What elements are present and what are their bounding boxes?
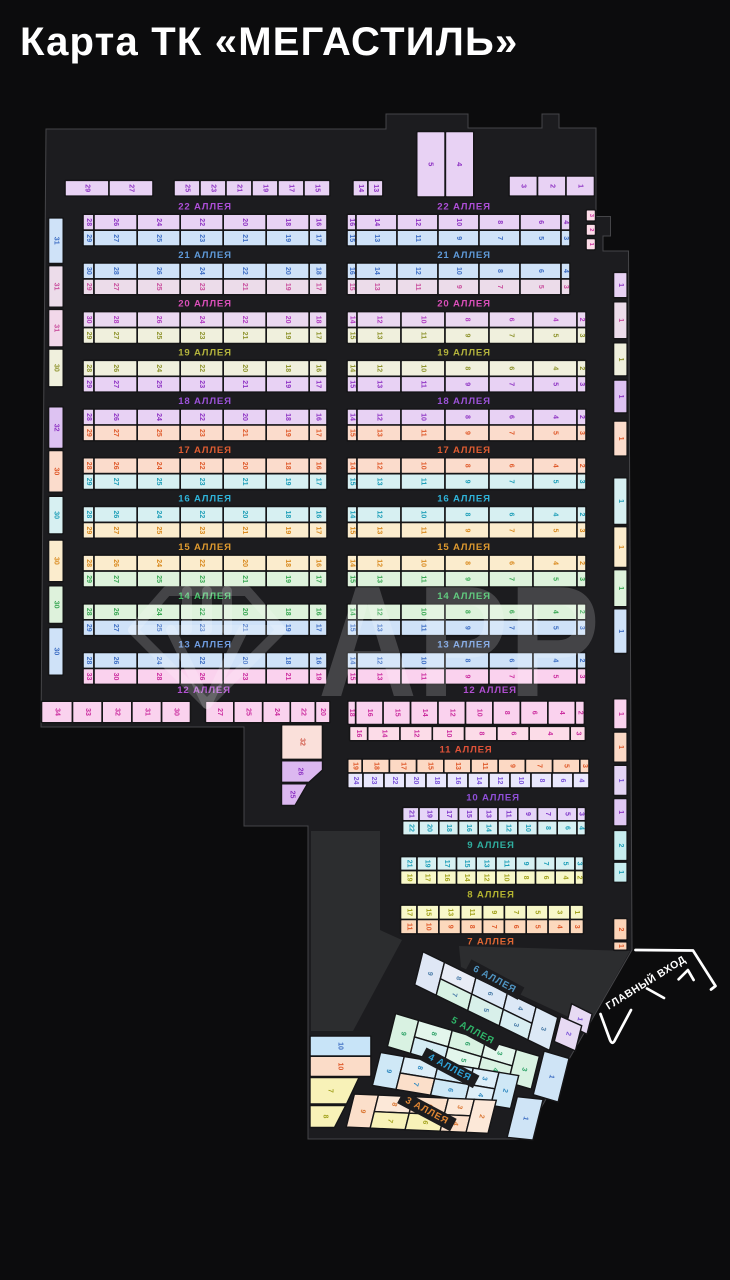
svg-text:9: 9 bbox=[446, 925, 453, 929]
svg-text:14: 14 bbox=[485, 824, 492, 832]
svg-text:27: 27 bbox=[112, 478, 119, 486]
svg-text:19 АЛЛЕЯ: 19 АЛЛЕЯ bbox=[437, 347, 491, 358]
svg-text:21: 21 bbox=[241, 575, 248, 583]
svg-text:Карта ТК «МЕГАСТИЛЬ»: Карта ТК «МЕГАСТИЛЬ» bbox=[20, 20, 518, 64]
svg-text:12: 12 bbox=[496, 777, 503, 785]
svg-text:9: 9 bbox=[464, 480, 471, 484]
svg-text:30: 30 bbox=[112, 673, 119, 681]
svg-text:7: 7 bbox=[508, 528, 515, 532]
svg-text:20: 20 bbox=[241, 511, 248, 519]
svg-text:23: 23 bbox=[198, 527, 205, 535]
svg-text:18: 18 bbox=[284, 364, 291, 372]
svg-text:1: 1 bbox=[617, 395, 624, 399]
svg-text:27: 27 bbox=[112, 332, 119, 340]
svg-text:4: 4 bbox=[556, 925, 563, 929]
svg-text:4: 4 bbox=[562, 220, 569, 224]
svg-text:31: 31 bbox=[52, 283, 59, 291]
svg-text:30: 30 bbox=[85, 316, 92, 324]
svg-text:18: 18 bbox=[284, 657, 291, 665]
svg-text:1: 1 bbox=[617, 318, 624, 322]
svg-text:5: 5 bbox=[426, 162, 435, 166]
svg-text:24: 24 bbox=[273, 708, 280, 716]
svg-text:16 АЛЛЕЯ: 16 АЛЛЕЯ bbox=[178, 494, 232, 505]
svg-text:27: 27 bbox=[112, 283, 119, 291]
svg-text:28: 28 bbox=[112, 267, 119, 275]
svg-text:15: 15 bbox=[349, 429, 356, 437]
svg-text:14: 14 bbox=[349, 364, 356, 372]
svg-text:1: 1 bbox=[617, 437, 624, 441]
svg-text:8: 8 bbox=[522, 876, 529, 880]
svg-text:22 АЛЛЕЯ: 22 АЛЛЕЯ bbox=[178, 201, 232, 212]
svg-text:11: 11 bbox=[420, 380, 427, 388]
svg-text:25: 25 bbox=[155, 332, 162, 340]
svg-text:29: 29 bbox=[85, 527, 92, 535]
svg-text:24: 24 bbox=[155, 462, 162, 470]
svg-text:9 АЛЛЕЯ: 9 АЛЛЕЯ bbox=[467, 840, 514, 851]
svg-text:5: 5 bbox=[564, 812, 571, 816]
svg-text:1: 1 bbox=[617, 712, 624, 716]
svg-text:16: 16 bbox=[465, 824, 472, 832]
svg-text:12: 12 bbox=[376, 462, 383, 470]
svg-text:23: 23 bbox=[198, 380, 205, 388]
svg-text:8: 8 bbox=[322, 1115, 329, 1119]
svg-text:14: 14 bbox=[380, 730, 387, 738]
svg-text:4: 4 bbox=[552, 415, 559, 419]
svg-text:13: 13 bbox=[454, 762, 461, 770]
svg-text:7: 7 bbox=[496, 285, 503, 289]
svg-text:5: 5 bbox=[552, 528, 559, 532]
svg-text:11: 11 bbox=[414, 283, 421, 291]
svg-text:20: 20 bbox=[241, 559, 248, 567]
svg-text:12: 12 bbox=[414, 218, 421, 226]
svg-text:13: 13 bbox=[373, 283, 380, 291]
svg-text:31: 31 bbox=[143, 708, 150, 716]
svg-text:1: 1 bbox=[617, 944, 624, 948]
svg-text:10: 10 bbox=[524, 824, 531, 832]
svg-text:5: 5 bbox=[552, 431, 559, 435]
svg-text:32: 32 bbox=[52, 424, 59, 432]
svg-text:27: 27 bbox=[112, 380, 119, 388]
svg-text:33: 33 bbox=[85, 673, 92, 681]
svg-text:24: 24 bbox=[352, 777, 359, 785]
svg-text:19: 19 bbox=[284, 332, 291, 340]
svg-text:14: 14 bbox=[475, 777, 482, 785]
svg-text:29: 29 bbox=[85, 429, 92, 437]
svg-text:21: 21 bbox=[407, 810, 414, 818]
svg-text:7: 7 bbox=[542, 862, 549, 866]
svg-text:12: 12 bbox=[376, 364, 383, 372]
svg-text:14: 14 bbox=[373, 267, 380, 275]
svg-text:21: 21 bbox=[241, 332, 248, 340]
svg-text:11: 11 bbox=[502, 860, 509, 868]
svg-text:2: 2 bbox=[578, 512, 585, 516]
svg-text:10: 10 bbox=[455, 267, 462, 275]
svg-text:7: 7 bbox=[536, 764, 543, 768]
svg-text:12: 12 bbox=[414, 267, 421, 275]
svg-text:23: 23 bbox=[198, 234, 205, 242]
svg-text:21: 21 bbox=[241, 527, 248, 535]
svg-text:17: 17 bbox=[400, 762, 407, 770]
svg-text:22: 22 bbox=[241, 316, 248, 324]
svg-text:2: 2 bbox=[576, 876, 583, 880]
svg-text:32: 32 bbox=[299, 738, 306, 746]
svg-text:6: 6 bbox=[508, 318, 515, 322]
svg-text:30: 30 bbox=[173, 708, 180, 716]
svg-text:10: 10 bbox=[455, 218, 462, 226]
svg-text:3: 3 bbox=[578, 334, 585, 338]
svg-text:23: 23 bbox=[198, 575, 205, 583]
svg-text:17: 17 bbox=[315, 332, 322, 340]
svg-text:11: 11 bbox=[405, 923, 412, 931]
svg-text:20: 20 bbox=[241, 608, 248, 616]
svg-text:10 АЛЛЕЯ: 10 АЛЛЕЯ bbox=[466, 793, 520, 804]
svg-text:17: 17 bbox=[315, 478, 322, 486]
svg-text:27: 27 bbox=[216, 708, 223, 716]
svg-text:6: 6 bbox=[564, 826, 571, 830]
svg-text:20: 20 bbox=[241, 462, 248, 470]
svg-text:14: 14 bbox=[349, 462, 356, 470]
svg-text:10: 10 bbox=[502, 874, 509, 882]
svg-text:8: 8 bbox=[464, 464, 471, 468]
svg-text:25: 25 bbox=[155, 380, 162, 388]
svg-text:15: 15 bbox=[348, 234, 355, 242]
svg-text:28: 28 bbox=[85, 511, 92, 519]
svg-text:20 АЛЛЕЯ: 20 АЛЛЕЯ bbox=[437, 299, 491, 310]
svg-text:12: 12 bbox=[376, 316, 383, 324]
svg-text:16: 16 bbox=[355, 730, 362, 738]
svg-text:22: 22 bbox=[198, 511, 205, 519]
svg-text:22: 22 bbox=[391, 777, 398, 785]
svg-text:2: 2 bbox=[578, 464, 585, 468]
svg-text:26: 26 bbox=[112, 559, 119, 567]
svg-text:7: 7 bbox=[512, 910, 519, 914]
svg-text:4: 4 bbox=[562, 876, 569, 880]
svg-text:3: 3 bbox=[520, 184, 527, 188]
svg-text:31: 31 bbox=[52, 324, 59, 332]
svg-text:11: 11 bbox=[481, 762, 488, 770]
svg-text:19: 19 bbox=[284, 283, 291, 291]
svg-text:8: 8 bbox=[464, 512, 471, 516]
svg-text:5: 5 bbox=[552, 334, 559, 338]
svg-text:29: 29 bbox=[84, 184, 91, 192]
svg-text:27: 27 bbox=[128, 184, 135, 192]
svg-text:3: 3 bbox=[578, 480, 585, 484]
svg-text:10: 10 bbox=[420, 511, 427, 519]
svg-text:28: 28 bbox=[85, 608, 92, 616]
svg-text:18: 18 bbox=[372, 762, 379, 770]
svg-text:1: 1 bbox=[617, 870, 624, 874]
svg-text:24: 24 bbox=[155, 413, 162, 421]
svg-text:3: 3 bbox=[562, 285, 569, 289]
svg-text:16: 16 bbox=[315, 364, 322, 372]
svg-text:30: 30 bbox=[52, 364, 59, 372]
svg-text:29: 29 bbox=[85, 478, 92, 486]
svg-text:4: 4 bbox=[552, 366, 559, 370]
svg-text:4: 4 bbox=[552, 318, 559, 322]
svg-text:16: 16 bbox=[315, 511, 322, 519]
svg-text:16: 16 bbox=[348, 218, 355, 226]
svg-text:1: 1 bbox=[617, 629, 624, 633]
svg-text:12: 12 bbox=[413, 730, 420, 738]
svg-text:19 АЛЛЕЯ: 19 АЛЛЕЯ bbox=[178, 347, 232, 358]
svg-text:11: 11 bbox=[504, 810, 511, 818]
svg-text:1: 1 bbox=[588, 243, 594, 246]
svg-text:22: 22 bbox=[198, 413, 205, 421]
svg-text:12: 12 bbox=[504, 824, 511, 832]
svg-text:8: 8 bbox=[496, 220, 503, 224]
svg-text:18 АЛЛЕЯ: 18 АЛЛЕЯ bbox=[178, 396, 232, 407]
svg-text:19: 19 bbox=[284, 478, 291, 486]
svg-text:9: 9 bbox=[524, 812, 531, 816]
svg-text:7 АЛЛЕЯ: 7 АЛЛЕЯ bbox=[467, 937, 514, 948]
svg-text:9: 9 bbox=[455, 285, 462, 289]
svg-text:6: 6 bbox=[542, 876, 549, 880]
svg-text:14: 14 bbox=[349, 413, 356, 421]
svg-text:18: 18 bbox=[315, 316, 322, 324]
svg-text:4: 4 bbox=[546, 732, 553, 736]
svg-text:5: 5 bbox=[552, 382, 559, 386]
svg-text:8 АЛЛЕЯ: 8 АЛЛЕЯ bbox=[467, 889, 514, 900]
svg-text:18: 18 bbox=[445, 824, 452, 832]
svg-text:22: 22 bbox=[198, 657, 205, 665]
svg-text:17: 17 bbox=[405, 908, 412, 916]
svg-text:11: 11 bbox=[420, 429, 427, 437]
svg-text:1: 1 bbox=[617, 499, 624, 503]
svg-text:2: 2 bbox=[588, 228, 594, 231]
svg-text:28: 28 bbox=[155, 673, 162, 681]
svg-text:3: 3 bbox=[576, 862, 583, 866]
svg-text:1: 1 bbox=[617, 545, 624, 549]
svg-text:29: 29 bbox=[85, 332, 92, 340]
svg-text:15: 15 bbox=[348, 283, 355, 291]
svg-text:19: 19 bbox=[423, 860, 430, 868]
svg-text:1: 1 bbox=[577, 184, 584, 188]
svg-text:21: 21 bbox=[284, 673, 291, 681]
svg-text:28: 28 bbox=[85, 657, 92, 665]
svg-text:6: 6 bbox=[512, 925, 519, 929]
svg-text:21: 21 bbox=[241, 234, 248, 242]
svg-text:15: 15 bbox=[349, 527, 356, 535]
svg-text:10: 10 bbox=[337, 1042, 344, 1050]
svg-text:2: 2 bbox=[617, 844, 624, 848]
svg-text:25: 25 bbox=[184, 184, 191, 192]
svg-text:25: 25 bbox=[155, 283, 162, 291]
svg-text:25: 25 bbox=[289, 791, 296, 799]
svg-text:21: 21 bbox=[241, 429, 248, 437]
svg-text:10: 10 bbox=[517, 777, 524, 785]
svg-text:22: 22 bbox=[198, 218, 205, 226]
svg-text:15: 15 bbox=[349, 332, 356, 340]
svg-text:3: 3 bbox=[556, 910, 563, 914]
svg-text:1: 1 bbox=[617, 357, 624, 361]
svg-text:9: 9 bbox=[464, 382, 471, 386]
svg-text:30: 30 bbox=[52, 601, 59, 609]
svg-text:24: 24 bbox=[155, 218, 162, 226]
svg-text:5: 5 bbox=[537, 236, 544, 240]
svg-text:19: 19 bbox=[351, 762, 358, 770]
svg-text:8: 8 bbox=[464, 366, 471, 370]
svg-text:19: 19 bbox=[262, 184, 269, 192]
svg-text:4: 4 bbox=[578, 779, 585, 783]
svg-text:12: 12 bbox=[483, 874, 490, 882]
svg-text:13: 13 bbox=[376, 478, 383, 486]
svg-text:25: 25 bbox=[245, 708, 252, 716]
svg-text:21 АЛЛЕЯ: 21 АЛЛЕЯ bbox=[178, 250, 232, 261]
svg-text:2: 2 bbox=[578, 366, 585, 370]
svg-text:25: 25 bbox=[155, 527, 162, 535]
svg-text:16: 16 bbox=[348, 267, 355, 275]
svg-text:14: 14 bbox=[463, 874, 470, 882]
svg-text:29: 29 bbox=[85, 234, 92, 242]
svg-text:20: 20 bbox=[241, 364, 248, 372]
svg-text:9: 9 bbox=[464, 431, 471, 435]
svg-text:29: 29 bbox=[85, 624, 92, 632]
svg-text:7: 7 bbox=[490, 925, 497, 929]
svg-text:13: 13 bbox=[446, 908, 453, 916]
svg-text:17: 17 bbox=[315, 283, 322, 291]
svg-text:14: 14 bbox=[373, 218, 380, 226]
svg-text:7: 7 bbox=[327, 1089, 334, 1093]
svg-text:26: 26 bbox=[112, 413, 119, 421]
svg-text:8: 8 bbox=[496, 269, 503, 273]
svg-text:10: 10 bbox=[424, 923, 431, 931]
svg-text:8: 8 bbox=[464, 318, 471, 322]
svg-text:25: 25 bbox=[155, 575, 162, 583]
svg-text:1: 1 bbox=[617, 745, 624, 749]
svg-text:7: 7 bbox=[544, 812, 551, 816]
svg-text:15: 15 bbox=[465, 810, 472, 818]
svg-text:15: 15 bbox=[314, 184, 321, 192]
svg-text:3: 3 bbox=[562, 236, 569, 240]
svg-text:17 АЛЛЕЯ: 17 АЛЛЕЯ bbox=[178, 445, 232, 456]
svg-text:28: 28 bbox=[85, 559, 92, 567]
svg-text:28: 28 bbox=[85, 413, 92, 421]
svg-text:30: 30 bbox=[52, 557, 59, 565]
svg-text:14: 14 bbox=[349, 511, 356, 519]
svg-text:5: 5 bbox=[534, 910, 541, 914]
svg-text:19: 19 bbox=[284, 429, 291, 437]
svg-text:3: 3 bbox=[578, 382, 585, 386]
svg-text:17: 17 bbox=[315, 429, 322, 437]
svg-text:5: 5 bbox=[563, 764, 570, 768]
svg-text:17: 17 bbox=[315, 527, 322, 535]
svg-text:23: 23 bbox=[210, 184, 217, 192]
svg-text:30: 30 bbox=[52, 468, 59, 476]
svg-text:16: 16 bbox=[315, 218, 322, 226]
svg-text:23: 23 bbox=[198, 478, 205, 486]
svg-text:6: 6 bbox=[508, 366, 515, 370]
svg-text:27: 27 bbox=[112, 429, 119, 437]
svg-text:18: 18 bbox=[284, 608, 291, 616]
svg-text:7: 7 bbox=[508, 480, 515, 484]
svg-text:11: 11 bbox=[420, 527, 427, 535]
svg-text:18: 18 bbox=[284, 511, 291, 519]
svg-text:23: 23 bbox=[198, 332, 205, 340]
svg-text:22: 22 bbox=[198, 462, 205, 470]
svg-text:15: 15 bbox=[349, 478, 356, 486]
svg-text:22: 22 bbox=[241, 267, 248, 275]
svg-text:3: 3 bbox=[573, 925, 580, 929]
svg-text:2: 2 bbox=[578, 318, 585, 322]
svg-text:21 АЛЛЕЯ: 21 АЛЛЕЯ bbox=[437, 250, 491, 261]
svg-text:20 АЛЛЕЯ: 20 АЛЛЕЯ bbox=[178, 299, 232, 310]
svg-text:2: 2 bbox=[617, 927, 624, 931]
svg-text:15 АЛЛЕЯ: 15 АЛЛЕЯ bbox=[178, 542, 232, 553]
svg-text:11: 11 bbox=[414, 234, 421, 242]
svg-text:20: 20 bbox=[284, 267, 291, 275]
svg-text:18 АЛЛЕЯ: 18 АЛЛЕЯ bbox=[437, 396, 491, 407]
svg-text:27: 27 bbox=[112, 234, 119, 242]
svg-text:9: 9 bbox=[490, 910, 497, 914]
svg-text:2: 2 bbox=[578, 415, 585, 419]
svg-text:22: 22 bbox=[198, 559, 205, 567]
svg-text:12: 12 bbox=[376, 511, 383, 519]
svg-text:5: 5 bbox=[537, 285, 544, 289]
svg-text:3: 3 bbox=[578, 812, 585, 816]
svg-text:11: 11 bbox=[420, 478, 427, 486]
svg-text:23: 23 bbox=[198, 429, 205, 437]
svg-text:17: 17 bbox=[315, 234, 322, 242]
svg-text:6: 6 bbox=[559, 779, 566, 783]
svg-text:14: 14 bbox=[349, 316, 356, 324]
svg-text:15 АЛЛЕЯ: 15 АЛЛЕЯ bbox=[437, 542, 491, 553]
svg-text:5: 5 bbox=[534, 925, 541, 929]
svg-text:27: 27 bbox=[112, 527, 119, 535]
svg-text:1: 1 bbox=[617, 810, 624, 814]
svg-text:22 АЛЛЕЯ: 22 АЛЛЕЯ bbox=[437, 201, 491, 212]
svg-text:13: 13 bbox=[373, 234, 380, 242]
svg-text:13: 13 bbox=[483, 860, 490, 868]
svg-text:13: 13 bbox=[376, 429, 383, 437]
svg-text:13: 13 bbox=[376, 332, 383, 340]
svg-text:18: 18 bbox=[433, 777, 440, 785]
svg-text:17 АЛЛЕЯ: 17 АЛЛЕЯ bbox=[437, 445, 491, 456]
svg-text:3: 3 bbox=[578, 528, 585, 532]
svg-text:9: 9 bbox=[455, 236, 462, 240]
svg-text:34: 34 bbox=[54, 708, 61, 716]
svg-text:27: 27 bbox=[112, 575, 119, 583]
svg-text:26: 26 bbox=[112, 608, 119, 616]
svg-text:26: 26 bbox=[155, 316, 162, 324]
svg-text:20: 20 bbox=[241, 413, 248, 421]
svg-text:1: 1 bbox=[617, 778, 624, 782]
svg-text:8: 8 bbox=[544, 826, 551, 830]
svg-text:29: 29 bbox=[85, 283, 92, 291]
svg-text:18: 18 bbox=[315, 267, 322, 275]
svg-text:19: 19 bbox=[284, 234, 291, 242]
svg-text:22: 22 bbox=[299, 708, 306, 716]
svg-text:10: 10 bbox=[420, 364, 427, 372]
svg-text:32: 32 bbox=[114, 708, 121, 716]
svg-text:21: 21 bbox=[405, 860, 412, 868]
svg-text:7: 7 bbox=[496, 236, 503, 240]
svg-text:15: 15 bbox=[427, 762, 434, 770]
svg-text:12: 12 bbox=[376, 413, 383, 421]
svg-text:25: 25 bbox=[155, 429, 162, 437]
svg-text:26: 26 bbox=[112, 462, 119, 470]
svg-text:16: 16 bbox=[315, 462, 322, 470]
svg-text:10: 10 bbox=[420, 462, 427, 470]
svg-text:6: 6 bbox=[508, 512, 515, 516]
svg-text:15: 15 bbox=[463, 860, 470, 868]
svg-text:1: 1 bbox=[573, 910, 580, 914]
svg-text:13: 13 bbox=[376, 380, 383, 388]
svg-text:3: 3 bbox=[578, 431, 585, 435]
svg-text:4: 4 bbox=[552, 512, 559, 516]
svg-text:8: 8 bbox=[477, 732, 484, 736]
svg-text:21: 21 bbox=[236, 184, 243, 192]
svg-text:18: 18 bbox=[284, 559, 291, 567]
